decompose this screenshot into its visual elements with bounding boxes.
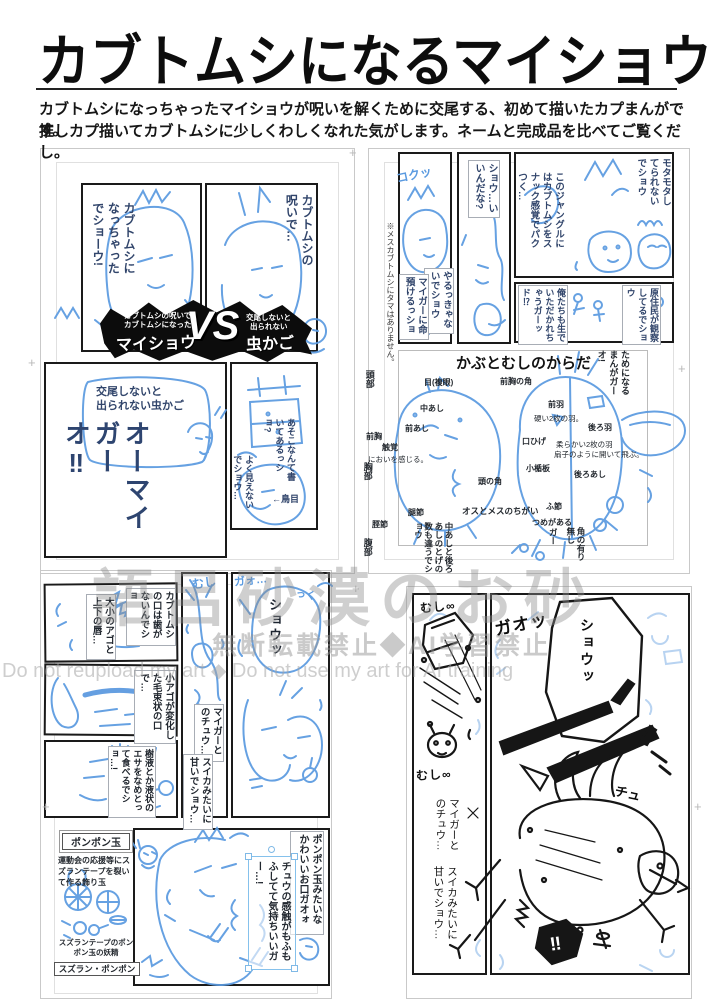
p3-mouth-dialogue2: 大小のアゴと上下の唇…: [86, 594, 116, 660]
diagram-part-abdomen: 腹部: [362, 538, 373, 562]
p4-kiss-dialogue1: マイガーとのチュウ…: [430, 798, 460, 858]
p2-jungle-dialogue1: モタモタしてられないでショウ: [634, 158, 671, 210]
diagram-label-diff-note: 中あしと後ろあしのとげの数も違うでショウ: [410, 522, 454, 578]
diagram-label-mouth: 口ひげ: [522, 437, 546, 447]
pompom-description: 運動会の応援等にスズランテープを裂いて作る飾り玉: [58, 856, 134, 888]
diagram-label-midleg: 中あし: [420, 404, 444, 414]
p3-kuku-sfx: っく: [295, 584, 317, 602]
p1-cage-shout: オーマイガーオ‼: [86, 420, 150, 532]
register-mark: +: [42, 800, 50, 813]
diagram-label-antenna-note: においを感じる。: [368, 455, 428, 464]
diagram-label-scutellum: 小楯板: [526, 464, 550, 474]
register-mark: +: [678, 362, 686, 375]
pompom-title-box: ポンポン玉: [62, 833, 130, 850]
p1-cage-caption: 交尾しないと 出られない虫かご: [96, 386, 184, 414]
p4-kiss-dialogue2: スイカみたいに甘いでショウ…: [428, 866, 458, 946]
p1-sign-note: ←鳥目: [272, 492, 299, 505]
selection-rotate-handle[interactable]: [268, 846, 275, 853]
diagram-label-eye: 目(複眼): [424, 378, 453, 388]
p2-resolve-dialogue2: マイガーに命預けるっショ: [399, 274, 429, 340]
p3-gao-sfx: ガォ…: [233, 570, 267, 589]
intro-text-line2: 推しカプ描いてカブトムシに少しくわしくなれた気がします。ネームと完成品を比べてご…: [39, 120, 689, 162]
diagram-label-femur: 腿節: [408, 508, 424, 518]
selection-handle[interactable]: [245, 965, 252, 972]
diagram-label-headhorn: 頭の角: [478, 477, 502, 487]
diagram-label-hindwing-note2: 扇子のように開いて飛ぶ。: [554, 450, 644, 459]
diagram-label-antenna: 触覚: [382, 443, 398, 453]
diagram-label-horn-diff: 角の有り無し: [562, 527, 586, 565]
diagram-label-hindwing-note1: 柔らかい2枚の羽: [556, 440, 613, 449]
p1-sign-dialogue2: よく見えないでショウ…: [230, 455, 254, 513]
register-mark: +: [352, 582, 360, 595]
p3-jaw-dialogue: 小アゴが変化した毛束状の口で…: [134, 670, 176, 744]
diagram-part-head: 頭部: [364, 370, 375, 394]
diagram-side-note: ためになるまんがガーオ!: [594, 350, 630, 400]
selection-handle[interactable]: [291, 853, 298, 860]
pompom-name-box: スズラン・ポンポン: [54, 962, 140, 976]
p3-food-dialogue: 樹液とか液状のエサをなめとって食べるでショ…!: [108, 746, 156, 818]
p3-mouth-dialogue1: カブトムシの口は歯がないんでショ: [126, 588, 176, 646]
register-mark: +: [694, 800, 702, 813]
diagram-label-forewing: 前羽: [548, 400, 564, 410]
register-mark: +: [28, 356, 36, 369]
diagram-label-pronotum-horn: 前胸の角: [500, 377, 532, 387]
p1-right-dialogue: カブトムシの呪いで…: [282, 194, 314, 274]
diagram-label-horn-diff2: ガー: [548, 528, 558, 550]
p3-shout: ショウッ: [264, 598, 282, 662]
manga-page: カブトムシになるマイショウ カブトムシになっちゃったマイショウが呪いを解くために…: [0, 0, 713, 1000]
diagram-label-tibia: 脛節: [372, 520, 388, 530]
diagram-part-prothorax: 前胸: [366, 432, 382, 442]
p4-mushi-sfx2: むし∞: [416, 765, 452, 784]
diagram-label-hindwing: 後ろ羽: [588, 423, 612, 433]
p3-selected-text: チュウの感触がもふもふしてて気持ちいいガー…!: [251, 861, 291, 961]
diagram-part-thorax: 胸部: [362, 462, 373, 486]
p1-sign-dialogue: あそこなんて書いてあるっショ?: [258, 418, 296, 484]
diagram-label-tarsus: ふ節: [546, 502, 562, 512]
vs-mark: VS: [186, 304, 239, 349]
p4-bubble-shout: ショウッ: [576, 618, 596, 690]
p4-mushi-sfx1: むし∞: [419, 596, 456, 616]
diagram-title: かぶとむしのからだ: [456, 352, 591, 373]
p3-mushi-sfx: むし: [191, 572, 217, 592]
diagram-label-forewing-note: 硬い2枚の羽。: [534, 414, 583, 423]
p2-footnote: ※メスカブトムシにタマはありません。: [383, 222, 395, 374]
p2-natives-dialogue1: 原住民が観察してるでショウ: [622, 285, 661, 345]
p2-confirm-dialogue: ショウ…いいんだな?: [468, 160, 500, 218]
title-divider: [36, 88, 677, 90]
pompom-caption: スズランテープのポンポン玉の妖精: [56, 938, 136, 958]
selection-handle[interactable]: [245, 853, 252, 860]
p2-natives-dialogue2: 俺たちも生でいただかれちゃうガーッド⁉: [518, 285, 568, 345]
diagram-label-diff-title: オスとメスのちがい: [462, 506, 539, 516]
p1-left-dialogue: カブトムシになっちゃったでショーウ!: [86, 202, 136, 284]
diagram-label-hindleg: 後ろあし: [574, 470, 606, 480]
page-title: カブトムシになるマイショウ: [38, 16, 678, 97]
diagram-label-foreleg: 前あし: [405, 424, 429, 434]
selection-handle[interactable]: [291, 965, 298, 972]
selected-text-object[interactable]: チュウの感触がもふもふしてて気持ちいいガー…!: [248, 856, 296, 970]
p2-jungle-dialogue2: このジャングルにはカブトムシをスナック感覚でパクつく…: [516, 172, 564, 252]
p3-kiss-dialogue2: スイカみたいに甘いでショウ…: [183, 754, 213, 830]
